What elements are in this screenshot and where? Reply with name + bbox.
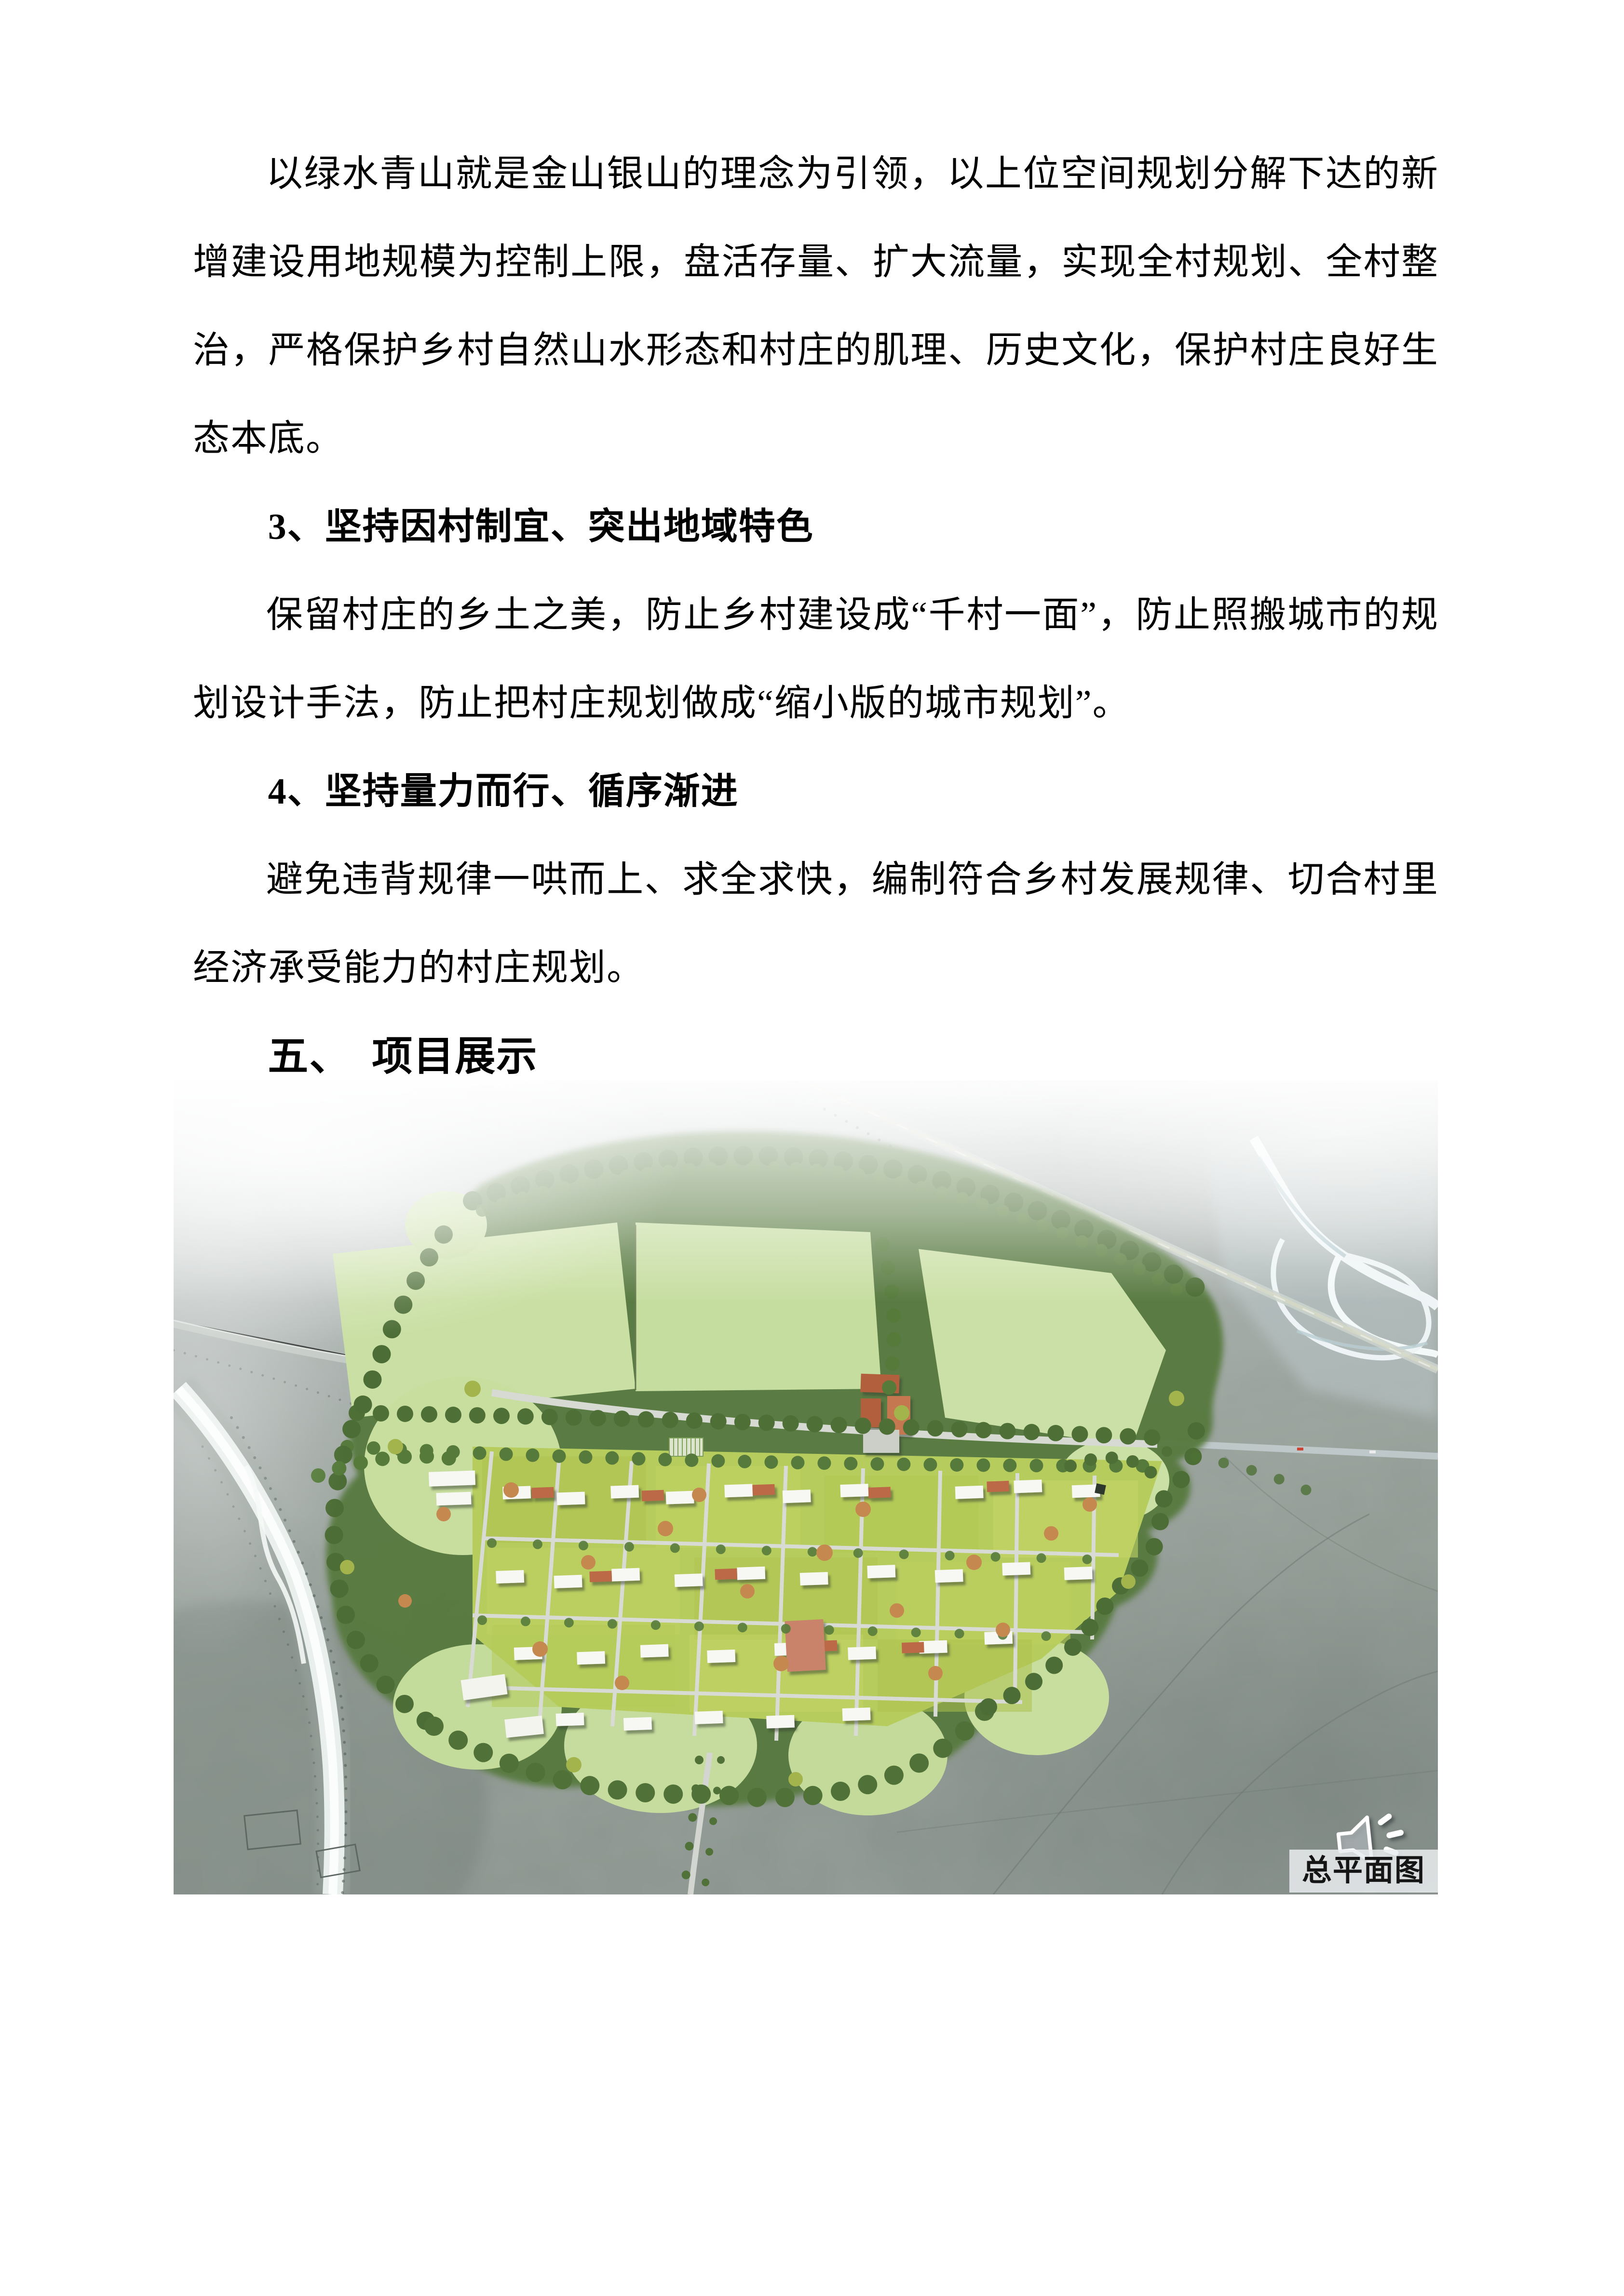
aerial-map-graphic (174, 1080, 1438, 1894)
vehicle-dot (1369, 1450, 1376, 1453)
figure-caption: 总平面图 (1289, 1850, 1438, 1893)
heading-principle-3: 3、坚持因村制宜、突出地域特色 (193, 483, 1439, 571)
master-plan-figure: 总平面图 (174, 1080, 1438, 1894)
small-hut (1095, 1483, 1106, 1495)
document-page: 以绿水青山就是金山银山的理念为引领，以上位空间规划分解下达的新增建设用地规模为控… (0, 0, 1624, 2296)
document-body: 以绿水青山就是金山银山的理念为引领，以上位空间规划分解下达的新增建设用地规模为控… (193, 0, 1439, 1101)
vehicle-dot (1297, 1448, 1303, 1450)
heading-principle-4: 4、坚持量力而行、循序渐进 (193, 748, 1439, 836)
greenhouse (669, 1438, 703, 1456)
paragraph-intro: 以绿水青山就是金山银山的理念为引领，以上位空间规划分解下达的新增建设用地规模为控… (193, 130, 1439, 483)
village-plaza (785, 1619, 826, 1672)
sound-waves (1380, 1815, 1403, 1854)
paragraph-principle-3: 保留村庄的乡土之美，防止乡村建设成“千村一面”，防止照搬城市的规划设计手法，防止… (193, 571, 1439, 748)
paragraph-principle-4: 避免违背规律一哄而上、求全求快，编制符合乡村发展规律、切合村里经济承受能力的村庄… (193, 836, 1439, 1012)
